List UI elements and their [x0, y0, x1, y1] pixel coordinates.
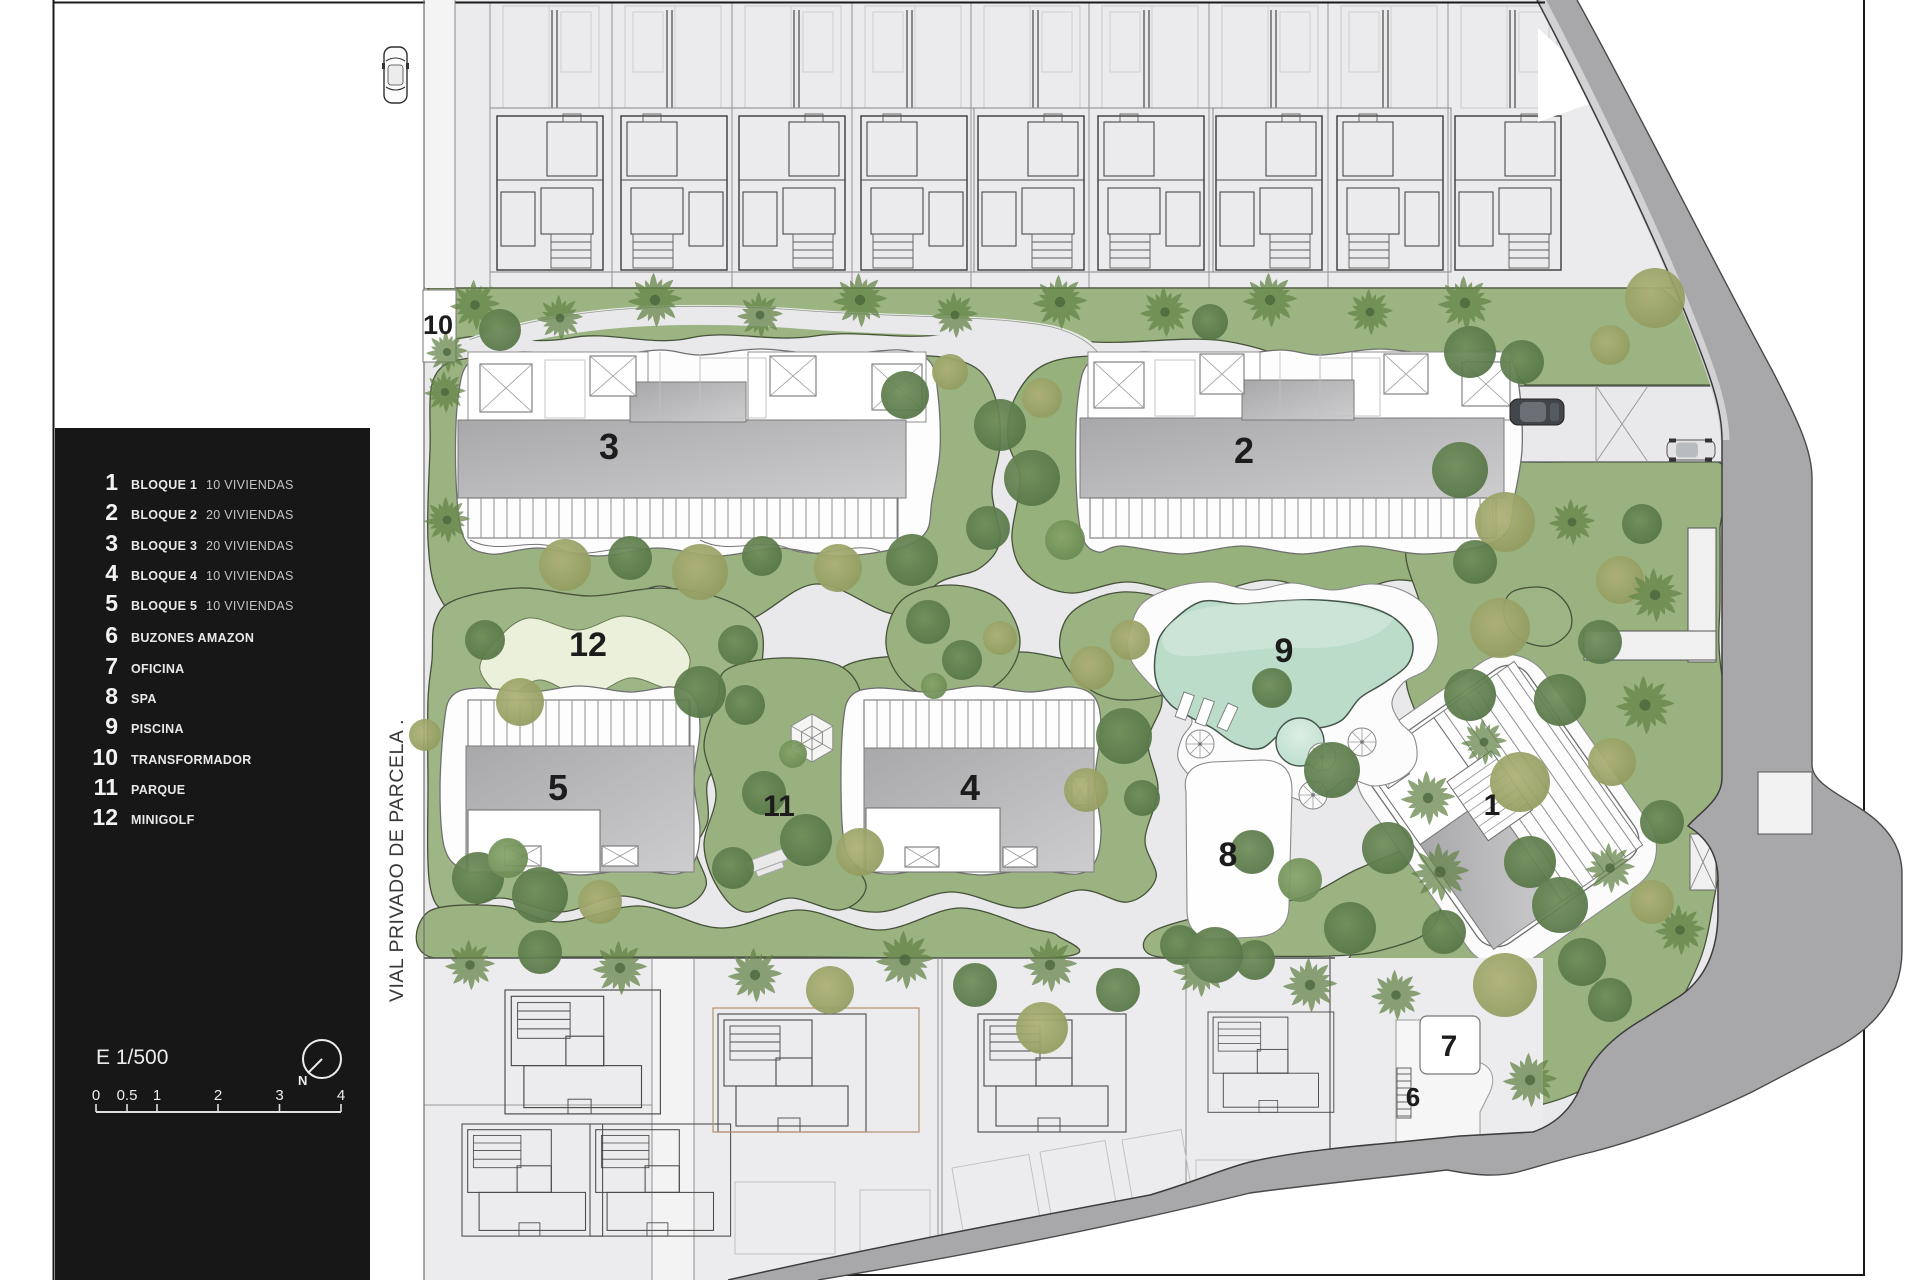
svg-text:8: 8: [1219, 836, 1238, 874]
svg-text:E 1/500: E 1/500: [96, 1046, 168, 1069]
svg-text:10 VIVIENDAS: 10 VIVIENDAS: [206, 478, 294, 492]
svg-text:10 VIVIENDAS: 10 VIVIENDAS: [206, 599, 294, 613]
svg-text:N: N: [298, 1073, 307, 1088]
svg-text:BLOQUE 4: BLOQUE 4: [131, 569, 197, 583]
svg-text:11: 11: [94, 774, 119, 800]
svg-text:6: 6: [105, 622, 118, 648]
svg-text:2: 2: [214, 1087, 222, 1104]
svg-text:BLOQUE 2: BLOQUE 2: [131, 508, 197, 522]
svg-text:4: 4: [105, 560, 118, 586]
svg-text:4: 4: [960, 767, 980, 808]
svg-text:2: 2: [1234, 430, 1254, 471]
svg-text:12: 12: [92, 804, 118, 830]
svg-text:4: 4: [337, 1087, 345, 1104]
svg-text:VIAL PRIVADO DE PARCELA .: VIAL PRIVADO DE PARCELA .: [386, 719, 408, 1002]
svg-text:0.5: 0.5: [117, 1087, 138, 1104]
svg-text:9: 9: [1275, 632, 1294, 670]
svg-text:BLOQUE 5: BLOQUE 5: [131, 599, 197, 613]
svg-text:5: 5: [105, 590, 118, 616]
svg-text:7: 7: [105, 653, 118, 679]
svg-text:20 VIVIENDAS: 20 VIVIENDAS: [206, 508, 294, 522]
svg-text:MINIGOLF: MINIGOLF: [131, 813, 195, 827]
svg-text:12: 12: [569, 626, 607, 664]
svg-text:3: 3: [275, 1087, 283, 1104]
svg-text:1: 1: [153, 1087, 161, 1104]
svg-text:10 VIVIENDAS: 10 VIVIENDAS: [206, 569, 294, 583]
svg-text:10: 10: [423, 310, 453, 340]
svg-text:8: 8: [105, 683, 118, 709]
svg-text:5: 5: [548, 767, 568, 808]
svg-text:0: 0: [92, 1087, 100, 1104]
svg-text:BLOQUE 1: BLOQUE 1: [131, 478, 197, 492]
svg-text:PARQUE: PARQUE: [131, 783, 185, 797]
svg-text:BUZONES AMAZON: BUZONES AMAZON: [131, 631, 254, 645]
svg-text:OFICINA: OFICINA: [131, 662, 185, 676]
svg-text:6: 6: [1406, 1082, 1420, 1112]
svg-text:20 VIVIENDAS: 20 VIVIENDAS: [206, 539, 294, 553]
svg-text:SPA: SPA: [131, 692, 157, 706]
svg-text:3: 3: [105, 530, 118, 556]
svg-text:TRANSFORMADOR: TRANSFORMADOR: [131, 753, 252, 767]
svg-text:11: 11: [763, 790, 795, 823]
svg-text:PISCINA: PISCINA: [131, 722, 184, 736]
svg-text:7: 7: [1441, 1030, 1458, 1063]
svg-text:9: 9: [105, 713, 118, 739]
svg-text:2: 2: [105, 499, 118, 525]
svg-text:1: 1: [1484, 789, 1501, 822]
svg-text:1: 1: [105, 469, 118, 495]
svg-text:3: 3: [599, 426, 619, 467]
svg-text:10: 10: [92, 744, 118, 770]
svg-text:BLOQUE 3: BLOQUE 3: [131, 539, 197, 553]
